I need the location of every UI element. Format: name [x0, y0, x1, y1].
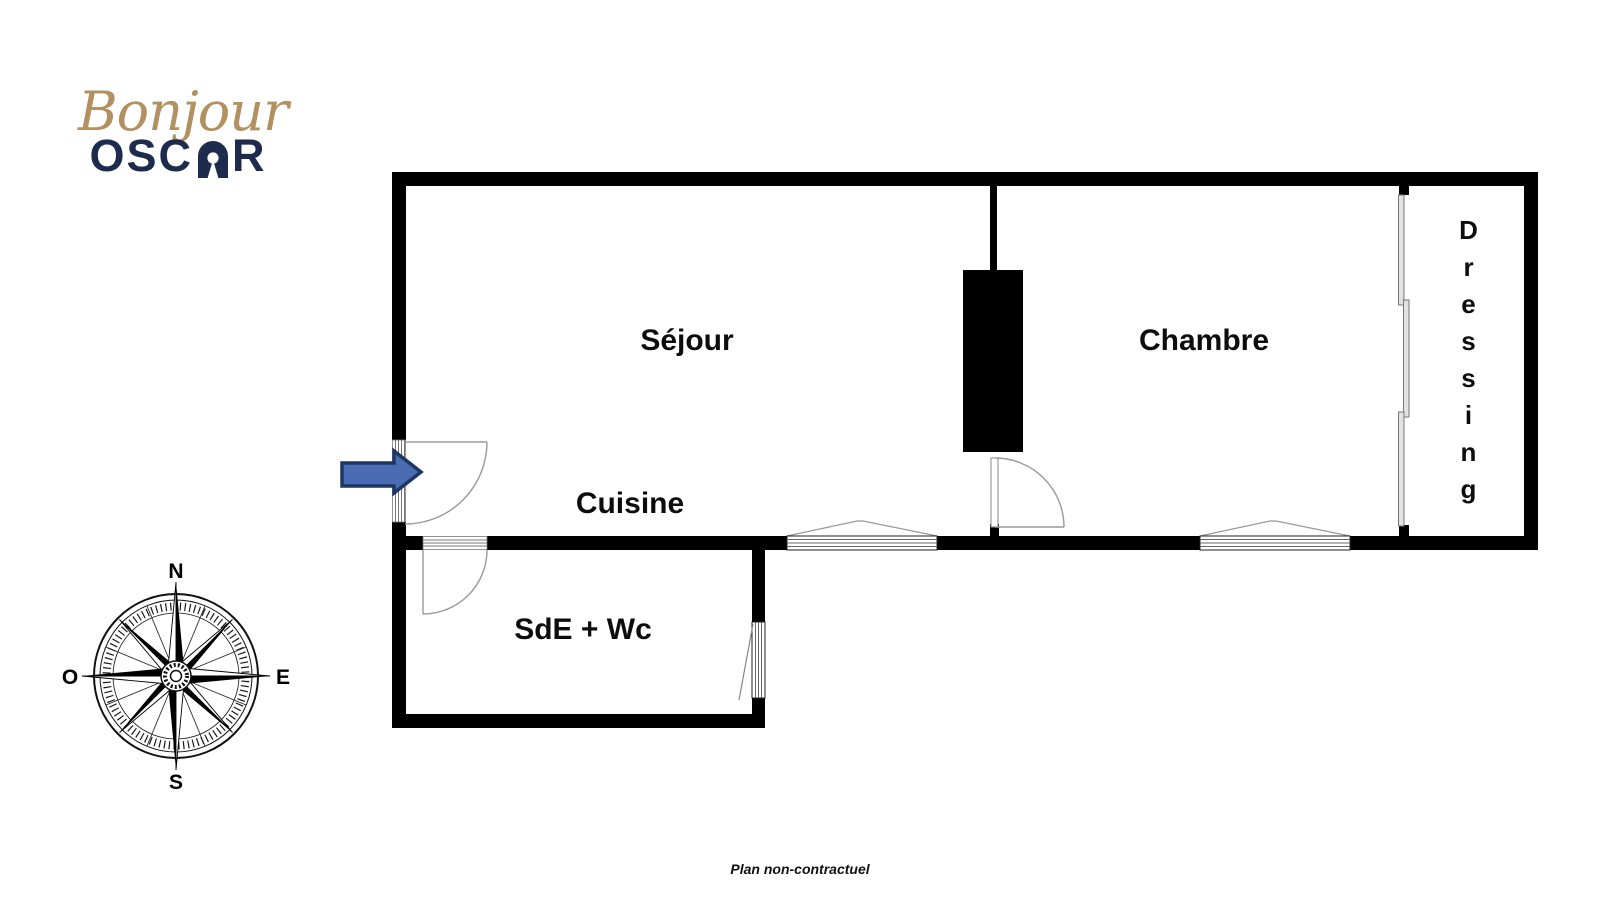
- room-label-dressing: Dressing: [1453, 215, 1484, 511]
- wall-right: [1524, 172, 1538, 550]
- wall-bottom-c: [937, 536, 1200, 550]
- room-label-sejour: Séjour: [640, 324, 733, 358]
- wall-sde-right-upper: [752, 536, 765, 622]
- compass-south-label: S: [169, 771, 183, 794]
- wall-bottom-d: [1350, 536, 1527, 550]
- room-label-cuisine: Cuisine: [576, 487, 684, 521]
- chambre-window: [1200, 521, 1350, 550]
- compass-rose-icon: [82, 582, 270, 770]
- room-label-sde: SdE + Wc: [514, 613, 652, 647]
- wall-bottom-a: [392, 536, 423, 550]
- compass-west-label: O: [62, 666, 78, 689]
- compass-north-label: N: [168, 560, 183, 583]
- cuisine-window: [787, 521, 937, 550]
- entrance-arrow-icon: [342, 451, 421, 493]
- compass-east-label: E: [276, 666, 290, 689]
- chambre-door: [991, 458, 1064, 527]
- floorplan-canvas: N S E O: [0, 0, 1600, 900]
- wall-left-lower: [392, 522, 406, 728]
- wall-top: [392, 172, 1538, 186]
- dressing-sliding-door: [1399, 195, 1410, 526]
- wall-partition-sejour-chambre: [990, 186, 997, 270]
- sde-door: [423, 537, 487, 615]
- plan-disclaimer: Plan non-contractuel: [730, 861, 869, 877]
- wall-nub-dressing-top: [1399, 186, 1409, 195]
- wall-bottom-b: [487, 536, 787, 550]
- closet-block: [963, 270, 1023, 452]
- room-label-chambre: Chambre: [1139, 324, 1269, 358]
- wall-sde-right-lower: [752, 698, 765, 714]
- wall-nub-dressing-bottom: [1399, 525, 1409, 536]
- sde-window: [739, 622, 765, 700]
- wall-sde-bottom: [392, 714, 765, 728]
- wall-left-upper: [392, 172, 406, 440]
